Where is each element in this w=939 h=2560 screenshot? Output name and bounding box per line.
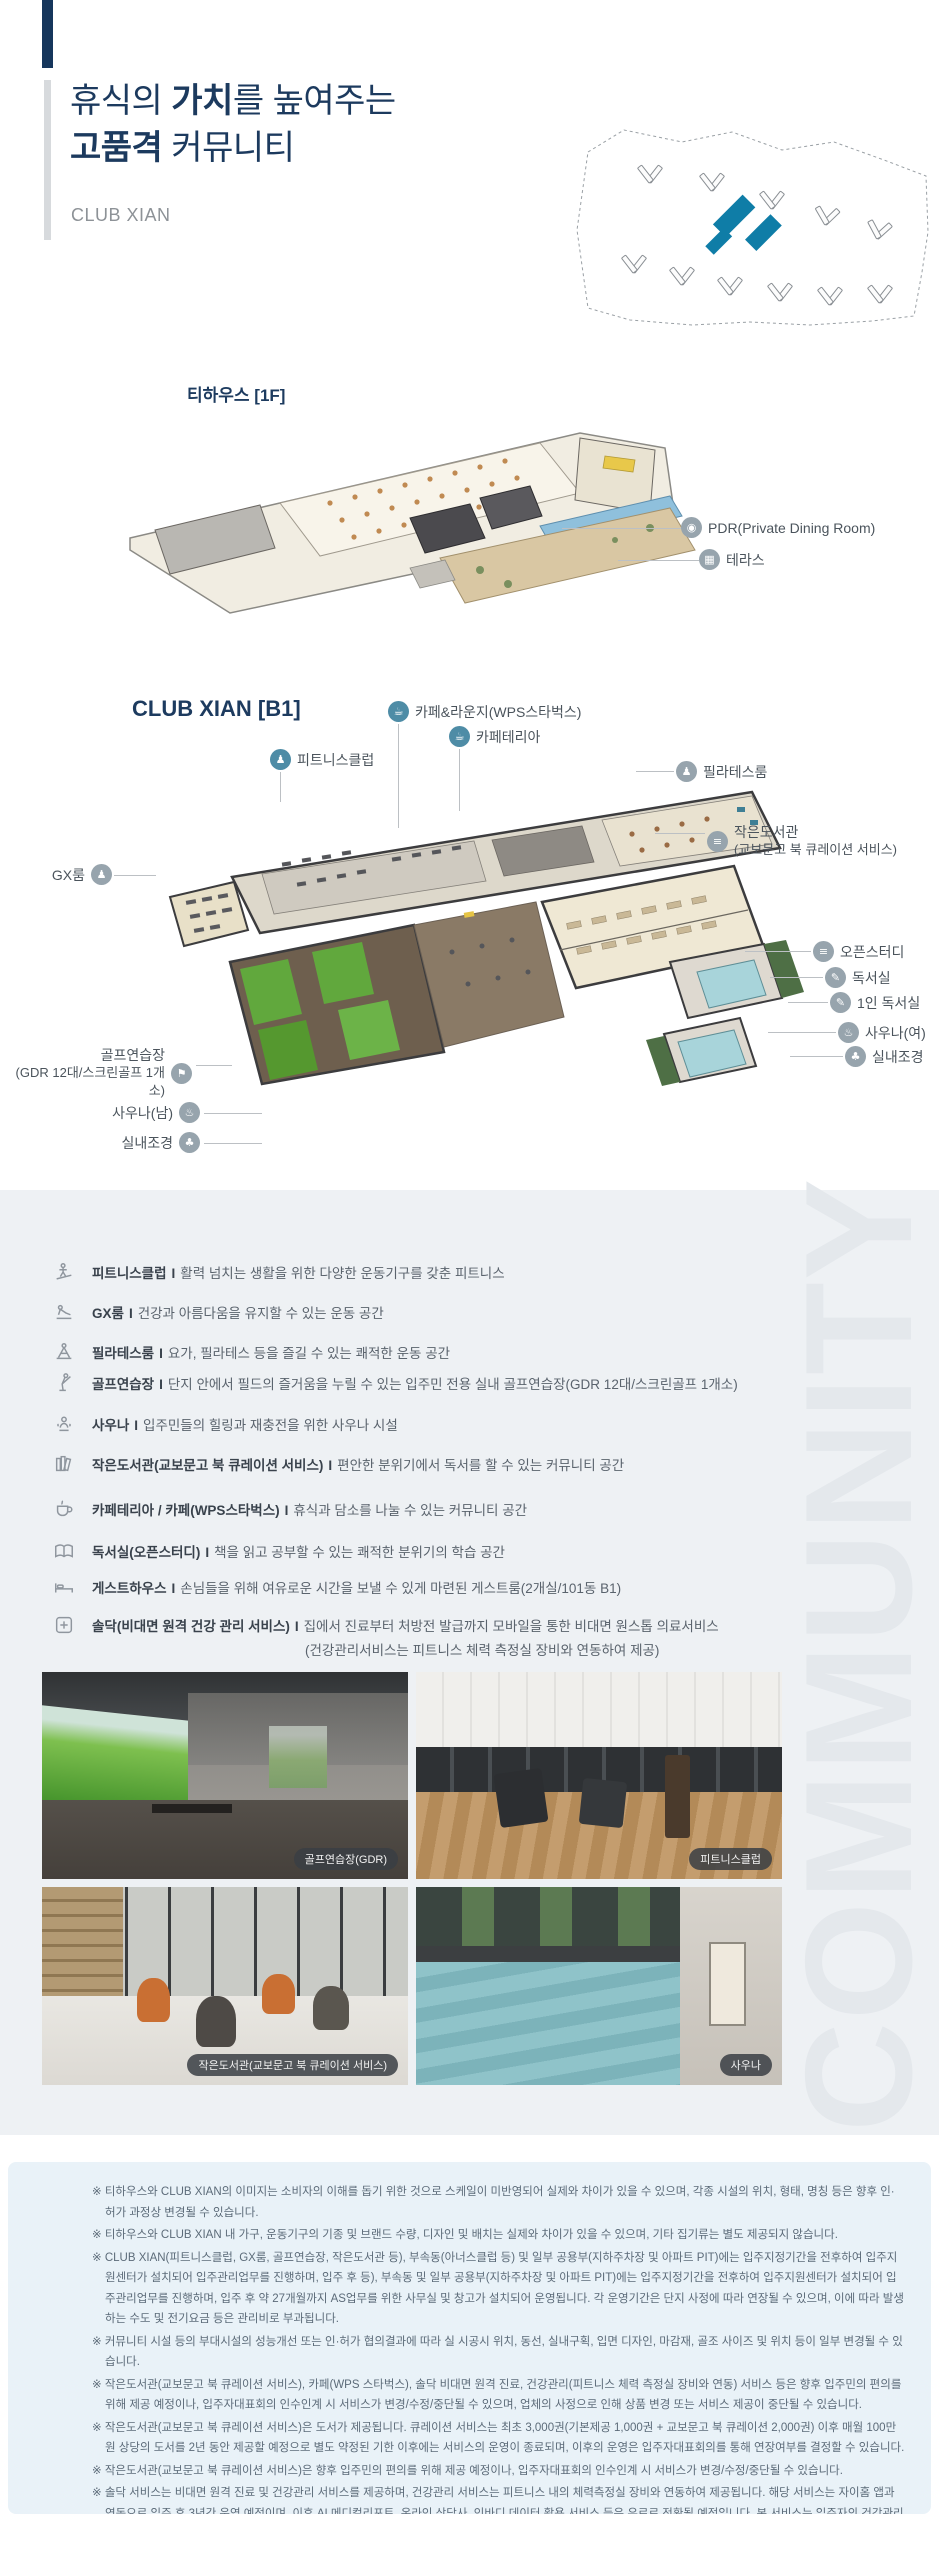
golf-range-icon: ⚑ (171, 1063, 192, 1084)
photo-caption: 사우나 (720, 2054, 772, 2076)
callout-pdr: ◉ PDR(Private Dining Room) (681, 517, 875, 538)
disclaimer-line: ※ 작은도서관(교보문고 북 큐레이션 서비스)은 향후 입주민의 편의를 위해… (92, 2461, 905, 2482)
cafe-icon (52, 1497, 76, 1521)
leader-cafeteria (459, 749, 460, 811)
teahouse-floorplan-svg (110, 398, 810, 618)
pilates-icon (52, 1340, 76, 1364)
teahouse-floorplan (110, 398, 810, 618)
photo-fitness-club: 피트니스클럽 (416, 1672, 782, 1879)
callout-landscape-left: 실내조경 ♣ (103, 1132, 200, 1153)
disclaimer-line: ※ 작은도서관(교보문고 북 큐레이션 서비스)은 도서가 제공됩니다. 큐레이… (92, 2418, 905, 2459)
gx-icon (52, 1300, 76, 1324)
disclaimer-line: ※ CLUB XIAN(피트니스클럽, GX룸, 골프연습장, 작은도서관 등)… (92, 2248, 905, 2330)
page-subtitle: CLUB XIAN (71, 205, 171, 226)
fitness-icon (52, 1260, 76, 1284)
leader-landscape-right (790, 1056, 843, 1057)
accent-bar (42, 0, 53, 68)
site-plan-map (572, 110, 932, 348)
list-item: GX룸I건강과 아름다움을 유지할 수 있는 운동 공간 (52, 1300, 384, 1324)
leader-sauna-men (204, 1113, 262, 1114)
leader-golf (196, 1065, 232, 1066)
library-chair-orange (137, 1978, 170, 2022)
disclaimer-line: ※ 티하우스와 CLUB XIAN의 이미지는 소비자의 이해를 돕기 위한 것… (92, 2182, 905, 2223)
disclaimer-line: ※ 솔닥 서비스는 비대면 원격 진료 및 건강관리 서비스를 제공하며, 건강… (92, 2483, 905, 2514)
sauna-window-plants (416, 1887, 680, 1946)
list-item: 게스트하우스I손님들을 위해 여유로운 시간을 보낼 수 있게 마련된 게스트룸… (52, 1575, 621, 1599)
library-bookshelf (42, 1887, 123, 1996)
single-reading-icon: ✎ (830, 992, 851, 1013)
soldoc-icon (52, 1613, 76, 1637)
photo-caption: 작은도서관(교보문고 북 큐레이션 서비스) (187, 2054, 398, 2076)
soldoc-note: (건강관리서비스는 피트니스 체력 측정실 장비와 연동하여 제공) (305, 1639, 659, 1659)
leader-fitness (280, 772, 281, 802)
leader-single-reading (788, 1002, 828, 1003)
title-line2: 고품격 커뮤니티 (70, 129, 294, 167)
pool-edge (416, 1946, 680, 1962)
leader-landscape-left (204, 1143, 262, 1144)
guesthouse-icon (52, 1575, 76, 1599)
leader-library (655, 833, 705, 834)
cafe-lounge-icon: ☕ (388, 701, 409, 722)
golf-bench (152, 1804, 233, 1812)
list-item: 작은도서관(교보문고 북 큐레이션 서비스)I편안한 분위기에서 독서를 할 수… (52, 1452, 624, 1476)
gym-ceiling (416, 1672, 782, 1747)
leader-terrace (618, 560, 699, 561)
b1-plan-title: CLUB XIAN [B1] (132, 696, 301, 722)
b1-floorplan (112, 762, 824, 1107)
page-title: 휴식의 가치를 높여주는 고품격 커뮤니티 (70, 78, 396, 172)
leader-sauna-women (768, 1032, 836, 1033)
photo-small-library: 작은도서관(교보문고 북 큐레이션 서비스) (42, 1887, 408, 2085)
photo-caption: 골프연습장(GDR) (294, 1848, 398, 1870)
disclaimer-box: ※ 티하우스와 CLUB XIAN의 이미지는 소비자의 이해를 돕기 위한 것… (8, 2162, 931, 2514)
list-item: 카페테리아 / 카페(WPS스타벅스)I휴식과 담소를 나눌 수 있는 커뮤니티… (52, 1497, 527, 1521)
cafeteria-icon: ☕ (449, 726, 470, 747)
open-study-icon: ≡ (813, 941, 834, 962)
leader-reading-room (770, 977, 823, 978)
callout-gx-room: GX룸 ♟ (30, 864, 112, 885)
callout-fitness: ♟ 피트니스클럽 (270, 749, 374, 770)
leader-open-study (745, 951, 811, 952)
photo-sauna: 사우나 (416, 1887, 782, 2085)
leader-pilates (636, 771, 674, 772)
callout-open-study: ≡ 오픈스터디 (813, 941, 904, 962)
callout-terrace: ▦ 테라스 (699, 549, 765, 570)
library-chair-gray (313, 1986, 350, 2030)
library-chair-gray (196, 1996, 236, 2047)
callout-sauna-women: ♨ 사우나(여) (838, 1022, 926, 1043)
callout-cafeteria: ☕ 카페테리아 (449, 726, 540, 747)
disclaimer-text: ※ 티하우스와 CLUB XIAN의 이미지는 소비자의 이해를 돕기 위한 것… (8, 2162, 931, 2514)
sauna-icon (52, 1412, 76, 1436)
gx-room-icon: ♟ (91, 864, 112, 885)
library-icon: ≡ (707, 831, 728, 852)
b1-floorplan-svg (112, 762, 824, 1107)
gym-pillar (665, 1755, 691, 1838)
photo-golf-range: 골프연습장(GDR) (42, 1672, 408, 1879)
leader-pdr (562, 528, 681, 529)
list-item: 독서실(오픈스터디)I책을 읽고 공부할 수 있는 쾌적한 분위기의 학습 공간 (52, 1539, 505, 1563)
disclaimer-line: ※ 티하우스와 CLUB XIAN 내 가구, 운동기구의 기종 및 브랜드 수… (92, 2225, 905, 2246)
gym-machine (493, 1768, 548, 1828)
sauna-door (709, 1942, 746, 2025)
callout-reading-room: ✎ 독서실 (825, 967, 891, 988)
landscape-icon: ♣ (179, 1132, 200, 1153)
callout-pilates: ♟ 필라테스룸 (676, 761, 767, 782)
community-watermark: COMMUNITY (772, 1177, 939, 2132)
callout-landscape-right: ♣ 실내조경 (845, 1046, 924, 1067)
sauna-men-icon: ♨ (179, 1102, 200, 1123)
library-chair-orange (262, 1974, 295, 2014)
callout-single-reading: ✎ 1인 독서실 (830, 992, 920, 1013)
callout-cafe-lounge: ☕ 카페&라운지(WPS스타벅스) (388, 701, 581, 722)
landscape-icon: ♣ (845, 1046, 866, 1067)
list-item: 필라테스룸I요가, 필라테스 등을 즐길 수 있는 쾌적한 운동 공간 (52, 1340, 450, 1364)
library-icon (52, 1452, 76, 1476)
pdr-icon: ◉ (681, 517, 702, 538)
list-item: 솔닥(비대면 원격 건강 관리 서비스)I집에서 진료부터 처방전 발급까지 모… (52, 1613, 719, 1637)
callout-golf: 골프연습장(GDR 12대/스크린골프 1개소) ⚑ (15, 1046, 192, 1100)
title-line1: 휴식의 가치를 높여주는 (70, 82, 396, 120)
disclaimer-line: ※ 작은도서관(교보문고 북 큐레이션 서비스), 카페(WPS 스타벅스), … (92, 2375, 905, 2416)
pilates-icon: ♟ (676, 761, 697, 782)
title-accent-bar (44, 80, 51, 240)
callout-library: ≡ 작은도서관(교보문고 북 큐레이션 서비스) (707, 823, 897, 859)
sauna-women-icon: ♨ (838, 1022, 859, 1043)
disclaimer-line: ※ 커뮤니티 시설 등의 부대시설의 성능개선 또는 인·허가 협의결과에 따라… (92, 2332, 905, 2373)
callout-sauna-men: 사우나(남) ♨ (103, 1102, 200, 1123)
pool-water (416, 1962, 680, 2085)
terrace-icon: ▦ (699, 549, 720, 570)
leader-cafe-lounge (398, 724, 399, 828)
list-item: 사우나I입주민들의 힐링과 재충전을 위한 사우나 시설 (52, 1412, 398, 1436)
golf-wall (188, 1693, 408, 1813)
site-plan-svg (572, 110, 932, 348)
photo-caption: 피트니스클럽 (689, 1848, 772, 1870)
list-item: 피트니스클럽I활력 넘치는 생활을 위한 다양한 운동기구를 갖춘 피트니스 (52, 1260, 505, 1284)
study-icon (52, 1539, 76, 1563)
gym-machine (578, 1777, 626, 1827)
golf-icon (52, 1371, 76, 1395)
list-item: 골프연습장I단지 안에서 필드의 즐거움을 누릴 수 있는 입주민 전용 실내 … (52, 1371, 738, 1395)
fitness-club-icon: ♟ (270, 749, 291, 770)
reading-room-icon: ✎ (825, 967, 846, 988)
leader-gx-room (114, 875, 156, 876)
